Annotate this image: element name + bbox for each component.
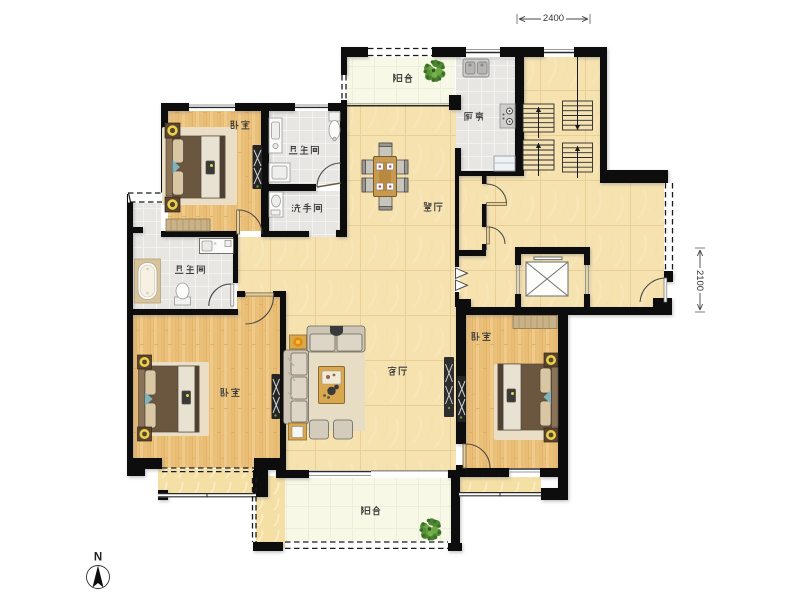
svg-text:N: N [94, 552, 102, 564]
svg-text:2400: 2400 [543, 13, 564, 24]
svg-text:2100: 2100 [694, 270, 705, 291]
